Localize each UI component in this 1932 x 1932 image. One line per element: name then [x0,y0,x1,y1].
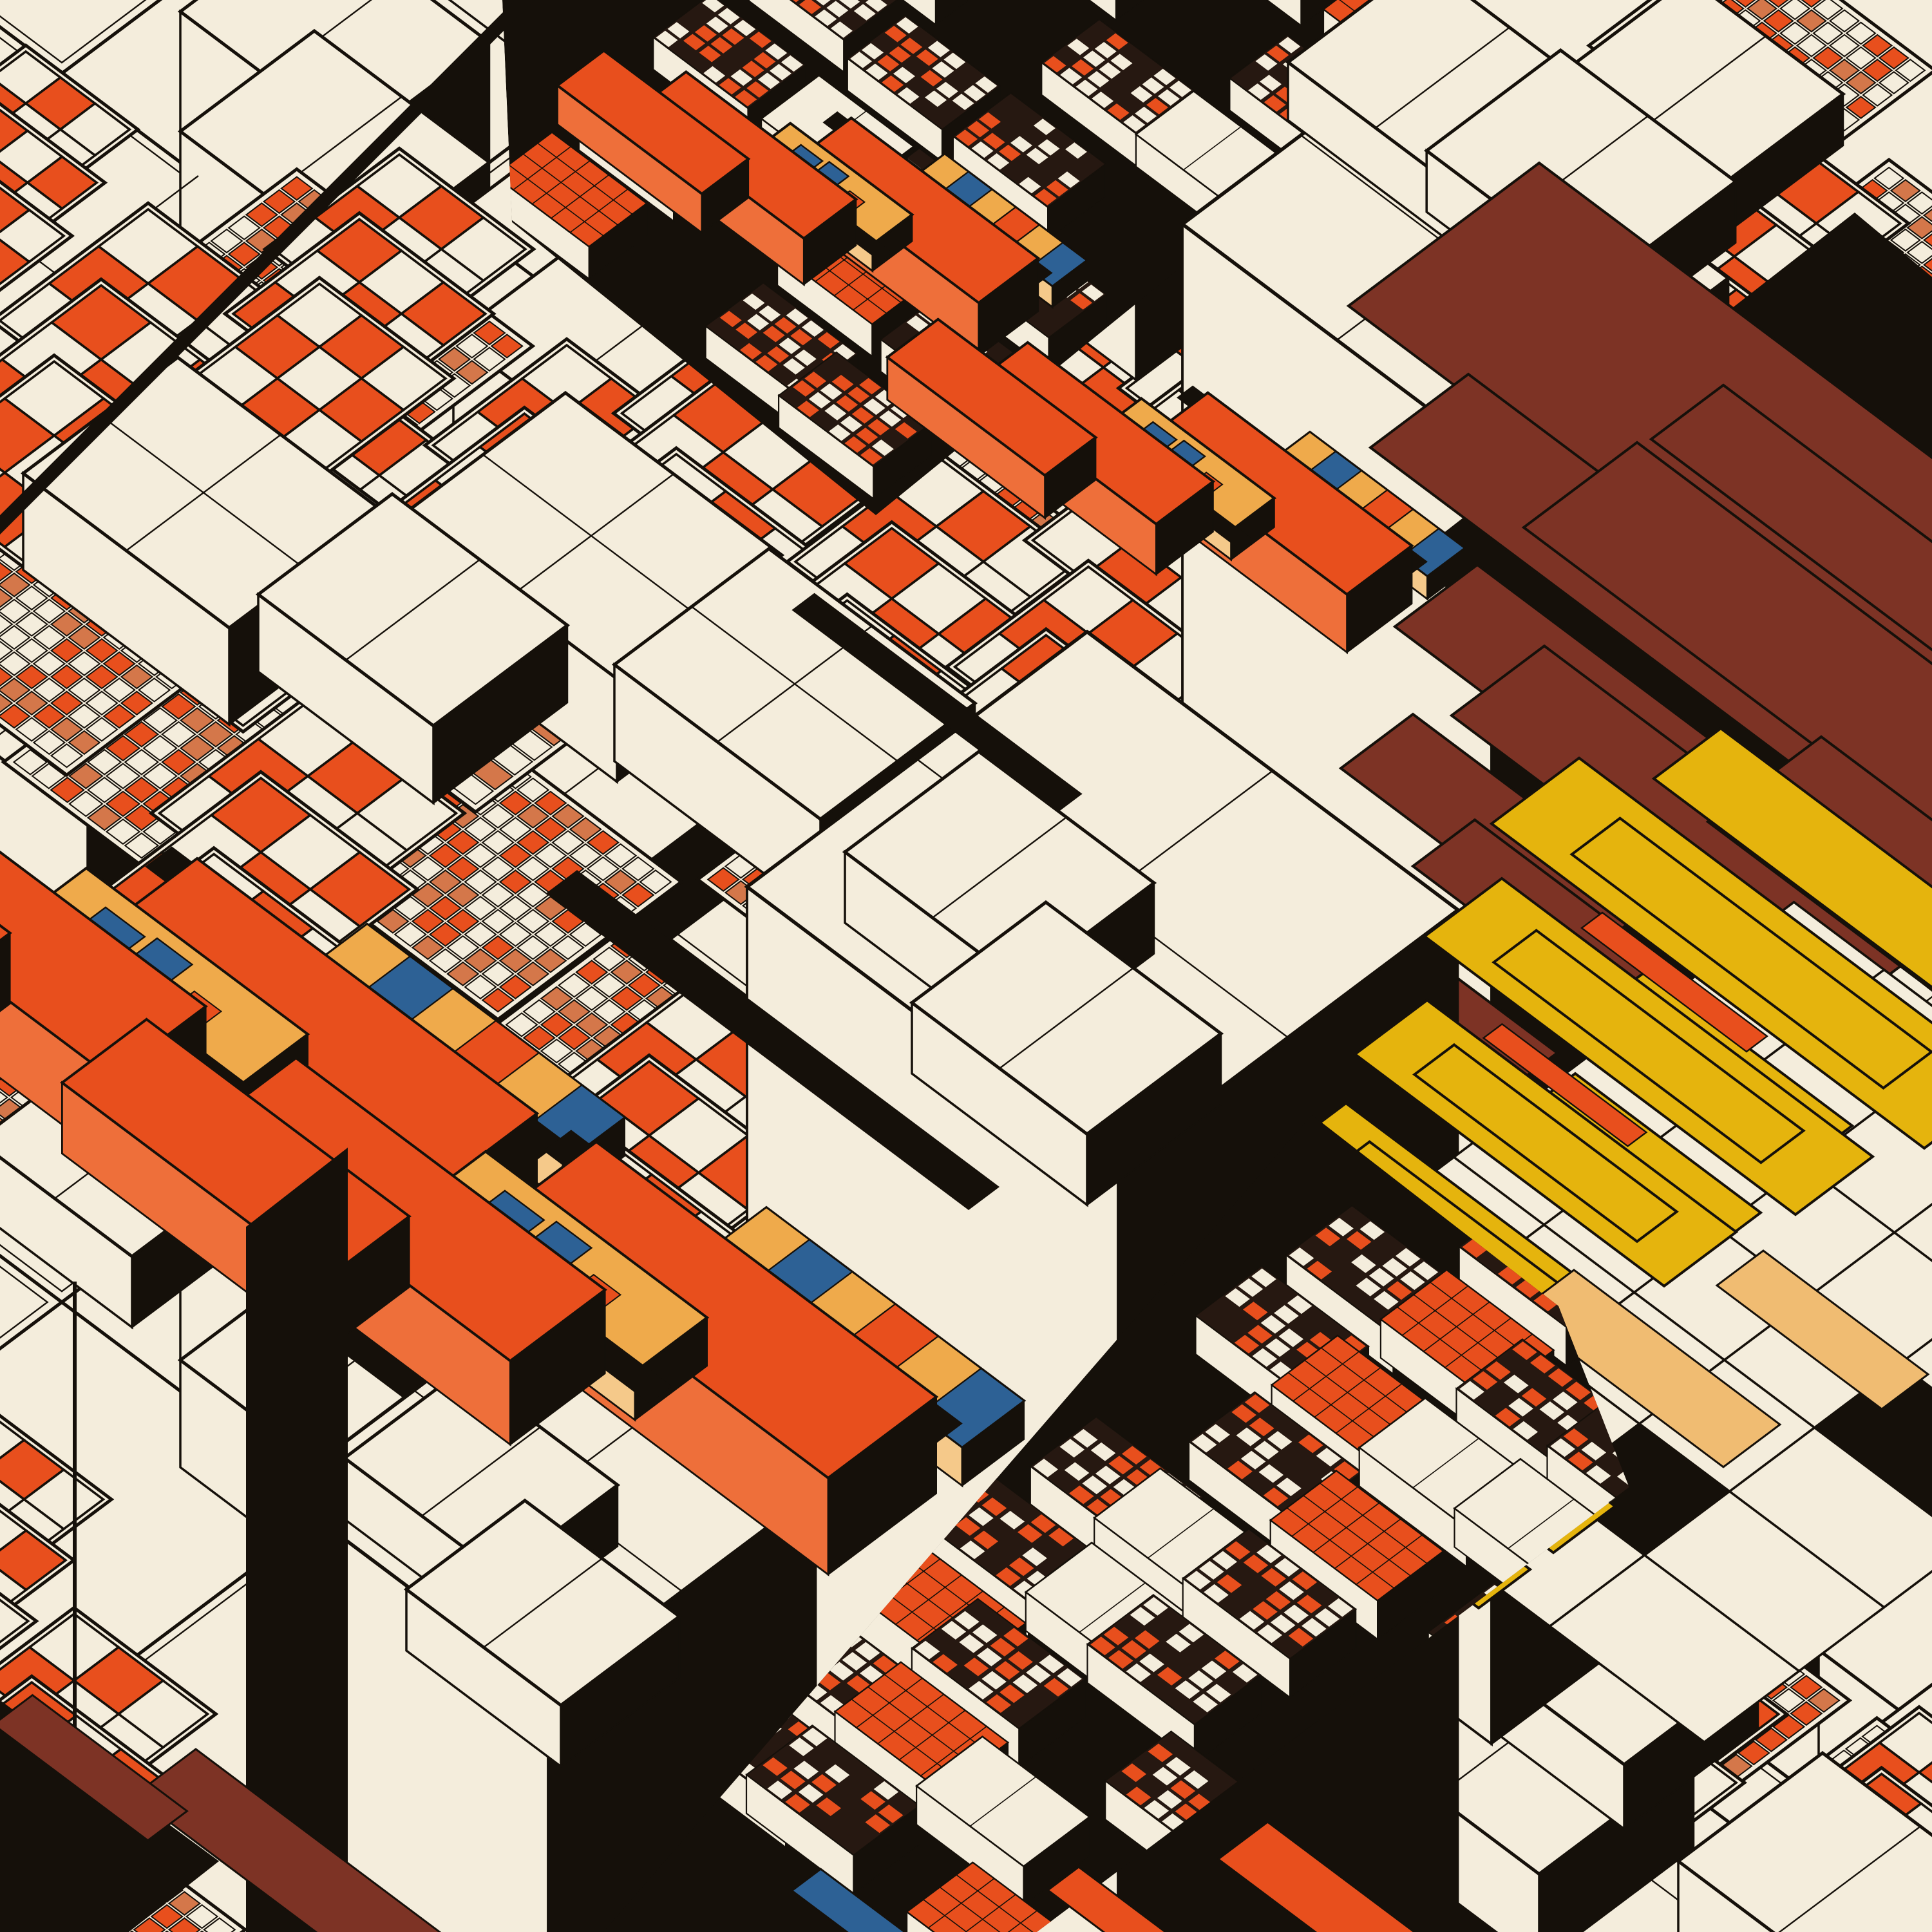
generative-artwork [0,0,1932,1932]
artwork-canvas [0,0,1932,1932]
